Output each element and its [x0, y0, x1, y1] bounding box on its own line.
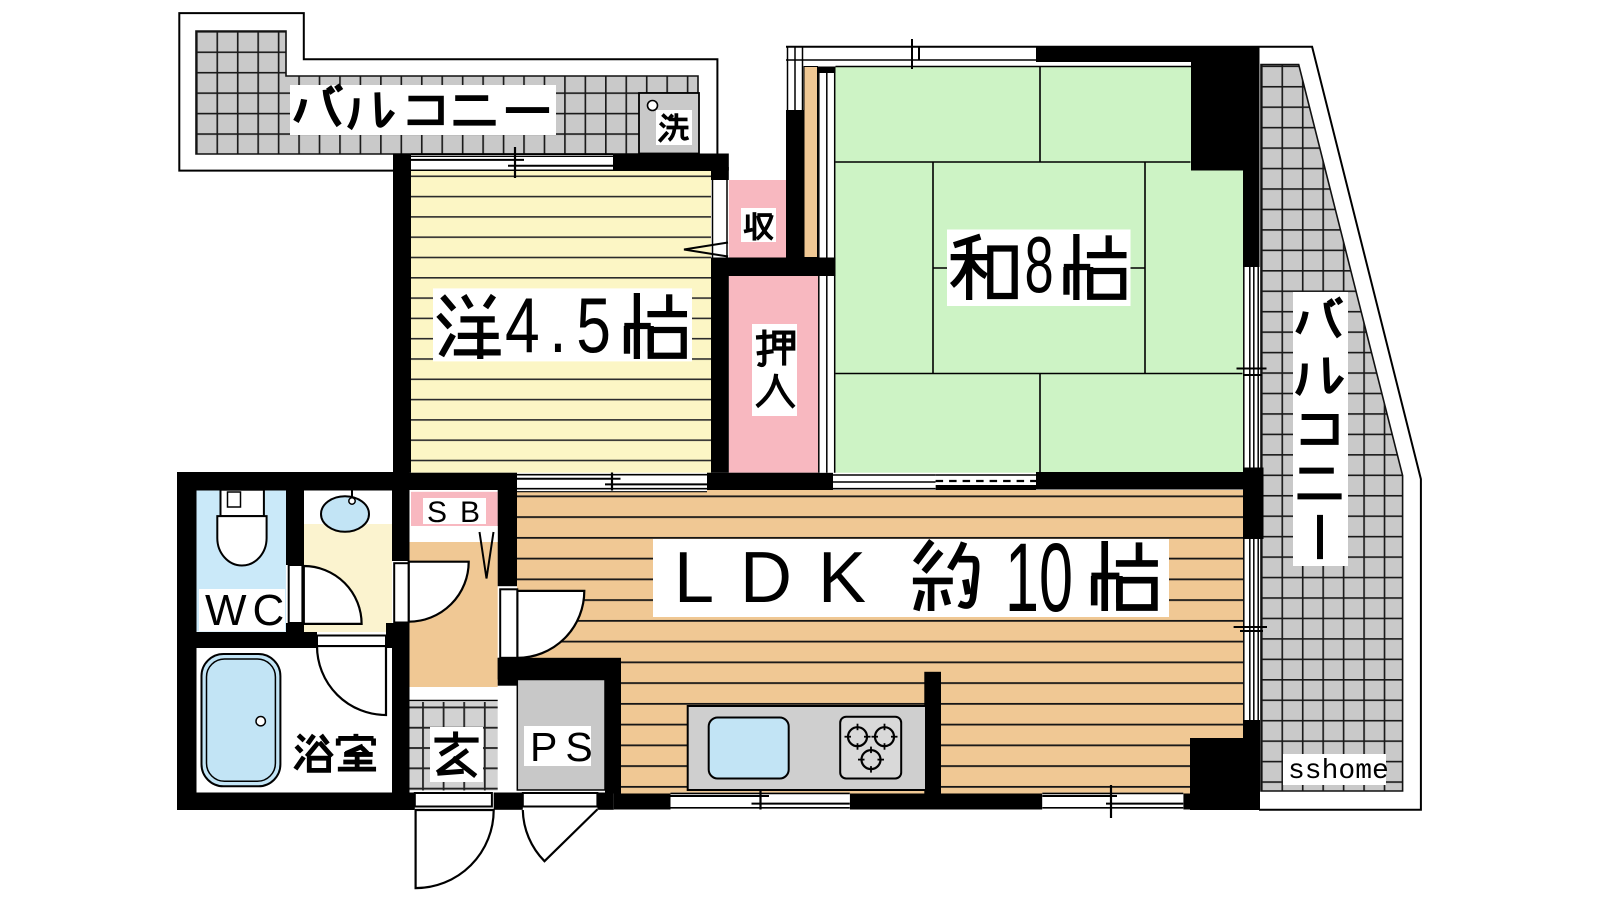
svg-text:SB: SB [427, 496, 493, 529]
svg-text:10: 10 [1005, 525, 1073, 633]
svg-text:PS: PS [530, 724, 601, 770]
svg-text:sshome: sshome [1288, 756, 1389, 787]
svg-text:WC: WC [205, 586, 290, 635]
svg-text:8: 8 [1025, 221, 1054, 310]
svg-text:LDK: LDK [674, 538, 892, 618]
svg-text:4.5: 4.5 [505, 281, 621, 368]
